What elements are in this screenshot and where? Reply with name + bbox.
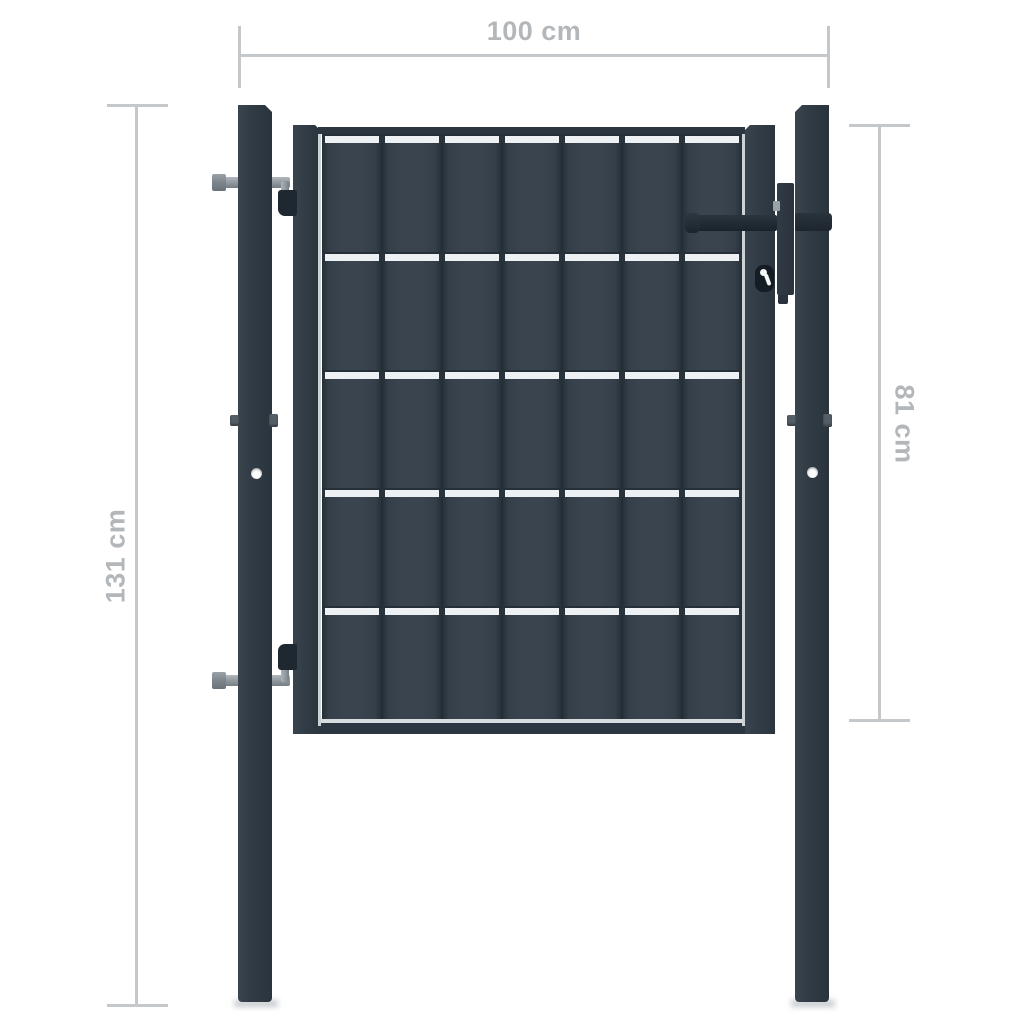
left-post-side-pin-left — [230, 415, 239, 426]
lock-plate-tab — [778, 295, 788, 304]
width-dimension-right-tick — [827, 26, 830, 88]
gate-slat-infill — [322, 127, 742, 733]
bottom-hinge-bolt-head — [212, 672, 226, 689]
latch-catch-bar — [795, 213, 832, 231]
keyhole-tail — [764, 273, 772, 286]
slat-bottom-fold — [318, 723, 745, 734]
mesh-edge-wire-left — [318, 134, 321, 726]
bottom-hinge-bracket — [278, 644, 297, 670]
gate-left-stile — [293, 125, 320, 734]
mesh-rail-4 — [322, 488, 742, 497]
mesh-rail-1 — [322, 134, 742, 143]
gate-height-top-tick — [849, 124, 910, 127]
slat-top-fold — [318, 127, 745, 134]
right-post-screw-hole — [807, 467, 818, 478]
mesh-rail-2 — [322, 252, 742, 261]
gate-height-dimension-label: 81 cm — [889, 384, 920, 463]
post-height-dimension-label: 131 cm — [101, 509, 132, 604]
fence-gate-dimension-diagram: 100 cm 131 cm 81 cm — [0, 0, 1024, 1024]
top-hinge-bracket — [278, 190, 297, 216]
lock-plate-clip — [773, 201, 780, 211]
gate-height-bottom-tick — [849, 719, 910, 722]
post-height-dimension-line — [135, 104, 138, 1006]
right-post-side-pin-left — [787, 415, 796, 426]
right-post-side-pin-right — [823, 414, 832, 427]
gate-handle-end-cap — [685, 213, 700, 233]
keyhole-icon — [755, 265, 774, 292]
left-post-screw-hole — [251, 468, 262, 479]
post-height-bottom-tick — [107, 1004, 168, 1007]
mesh-rail-3 — [322, 370, 742, 379]
width-dimension-label: 100 cm — [459, 16, 609, 47]
width-dimension-line — [239, 54, 829, 57]
gate-handle — [687, 215, 777, 231]
mesh-rail-bottom — [318, 719, 745, 723]
lock-plate — [777, 183, 794, 295]
right-fence-post — [795, 105, 829, 1002]
left-fence-post — [238, 105, 272, 1002]
gate-height-dimension-line — [878, 125, 881, 722]
mesh-rail-5 — [322, 606, 742, 615]
left-post-side-pin-right — [269, 414, 278, 427]
width-dimension-left-tick — [238, 26, 241, 88]
post-height-top-tick — [107, 104, 168, 107]
top-hinge-bolt-head — [212, 174, 226, 191]
